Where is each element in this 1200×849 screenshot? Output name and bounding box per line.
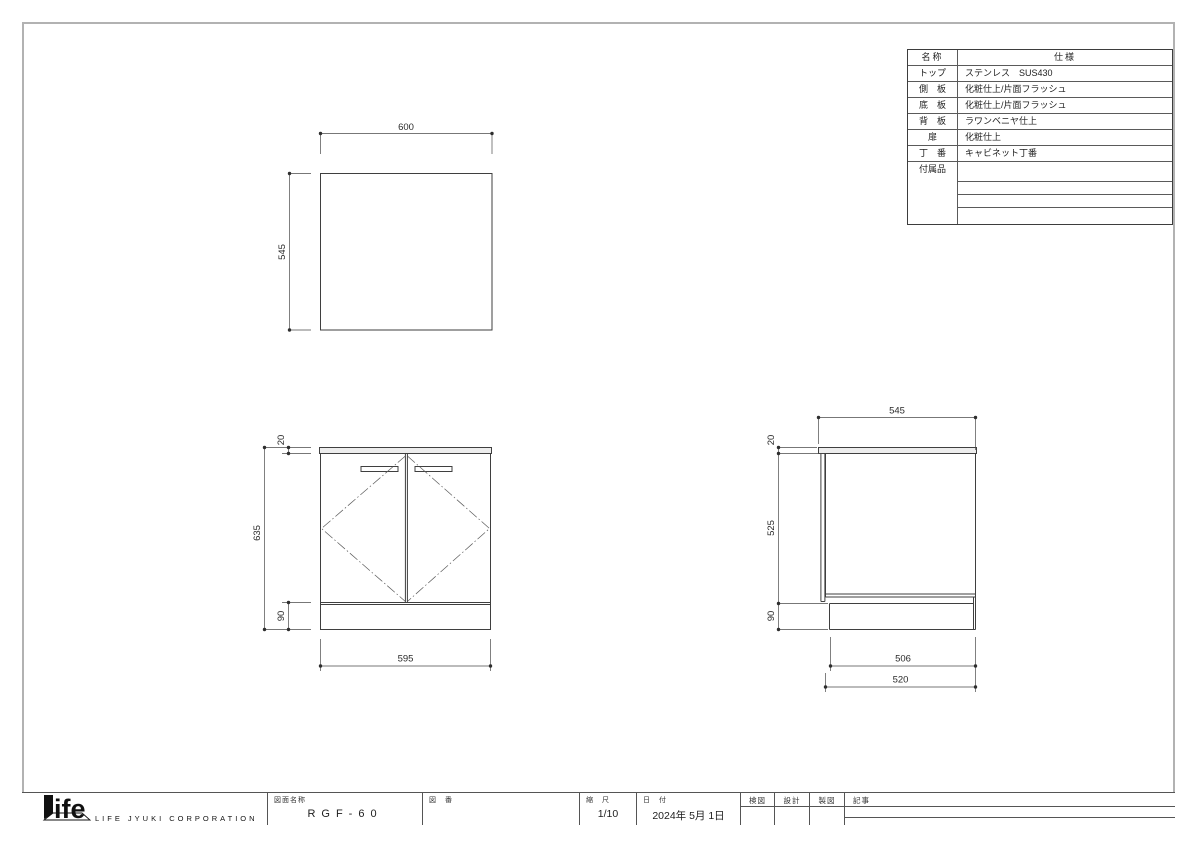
spec-row-door: 扉 化粧仕上 xyxy=(908,130,1172,146)
dim-front-width: 595 xyxy=(398,654,414,665)
spec-table: 名称 仕様 トップ ステンレス SUS430 側 板 化粧仕上/片面フラッシュ … xyxy=(907,49,1173,225)
notes-label: 記事 xyxy=(845,793,1175,807)
dim-front-height: 635 xyxy=(252,525,263,541)
spec-row-bottom-panel: 底 板 化粧仕上/片面フラッシュ xyxy=(908,98,1172,114)
dim-top-width: 600 xyxy=(398,122,414,133)
scale-cell: 縮 尺 1/10 xyxy=(580,793,637,825)
dim-front-counter: 20 xyxy=(276,435,287,446)
spec-value: 化粧仕上 xyxy=(958,133,1172,142)
spec-header-row: 名称 仕様 xyxy=(908,50,1172,66)
spec-label: 背 板 xyxy=(908,114,958,129)
spec-label: 付属品 xyxy=(908,162,958,224)
check-label: 検図 xyxy=(741,793,774,807)
spec-row-back-panel: 背 板 ラワンベニヤ仕上 xyxy=(908,114,1172,130)
drawing-no-cell: 図 番 xyxy=(423,793,580,825)
dim-side-counter: 20 xyxy=(766,435,777,446)
scale-value: 1/10 xyxy=(580,808,636,820)
spec-label: 扉 xyxy=(908,130,958,145)
check-cell: 検図 xyxy=(741,793,775,825)
spec-row-accessories: 付属品 xyxy=(908,162,1172,224)
drawing-name-cell: 図面名称 RGF-60 xyxy=(268,793,423,825)
spec-empty-row xyxy=(958,195,1172,208)
front-view xyxy=(320,448,492,630)
spec-accessory-rows xyxy=(958,162,1172,224)
notes-empty-row xyxy=(845,807,1175,818)
spec-value: 化粧仕上/片面フラッシュ xyxy=(958,101,1172,110)
dim-side-kick-depth: 506 xyxy=(895,654,911,665)
spec-row-hinge: 丁 番 キャビネット丁番 xyxy=(908,146,1172,162)
spec-empty-row xyxy=(958,208,1172,224)
spec-value: キャビネット丁番 xyxy=(958,149,1172,158)
spec-value: ステンレス SUS430 xyxy=(958,69,1172,78)
date-cell: 日 付 2024年 5月 1日 xyxy=(637,793,741,825)
draft-label: 製図 xyxy=(810,793,844,807)
spec-value: ラワンベニヤ仕上 xyxy=(958,117,1172,126)
company-logo: ife LIFE JYUKI CORPORATION xyxy=(38,793,278,830)
scale-label: 縮 尺 xyxy=(580,793,636,805)
spec-label: 丁 番 xyxy=(908,146,958,161)
dim-side-depth: 545 xyxy=(889,406,905,417)
drawing-no-label: 図 番 xyxy=(423,793,579,805)
spec-header-name: 名称 xyxy=(908,50,958,65)
design-cell: 設計 xyxy=(775,793,810,825)
drawing-name-label: 図面名称 xyxy=(268,793,422,805)
dim-side-base-depth: 520 xyxy=(893,675,909,686)
dim-side-body: 525 xyxy=(766,520,777,536)
spec-row-top: トップ ステンレス SUS430 xyxy=(908,66,1172,82)
drawing-sheet: 600 545 xyxy=(0,0,1200,849)
company-name: LIFE JYUKI CORPORATION xyxy=(95,814,258,823)
draft-cell: 製図 xyxy=(810,793,845,825)
dim-front-kick: 90 xyxy=(276,611,287,622)
spec-empty-row xyxy=(958,182,1172,195)
spec-header-spec: 仕様 xyxy=(958,53,1172,62)
spec-label: 底 板 xyxy=(908,98,958,113)
logo-cell: ife LIFE JYUKI CORPORATION xyxy=(22,793,268,825)
logo-text: ife xyxy=(54,794,86,824)
drawing-name-value: RGF-60 xyxy=(268,808,422,820)
spec-value: 化粧仕上/片面フラッシュ xyxy=(958,85,1172,94)
design-label: 設計 xyxy=(775,793,809,807)
date-label: 日 付 xyxy=(637,793,740,805)
spec-label: 側 板 xyxy=(908,82,958,97)
spec-label: トップ xyxy=(908,66,958,81)
side-view xyxy=(819,448,977,630)
top-view xyxy=(321,174,493,331)
date-value: 2024年 5月 1日 xyxy=(637,808,740,823)
dim-side-kick: 90 xyxy=(766,611,777,622)
title-block: ife LIFE JYUKI CORPORATION 図面名称 RGF-60 図… xyxy=(22,792,1175,825)
spec-empty-row xyxy=(958,162,1172,182)
spec-row-side-panel: 側 板 化粧仕上/片面フラッシュ xyxy=(908,82,1172,98)
notes-cell: 記事 xyxy=(845,793,1175,825)
dim-top-depth: 545 xyxy=(277,244,288,260)
